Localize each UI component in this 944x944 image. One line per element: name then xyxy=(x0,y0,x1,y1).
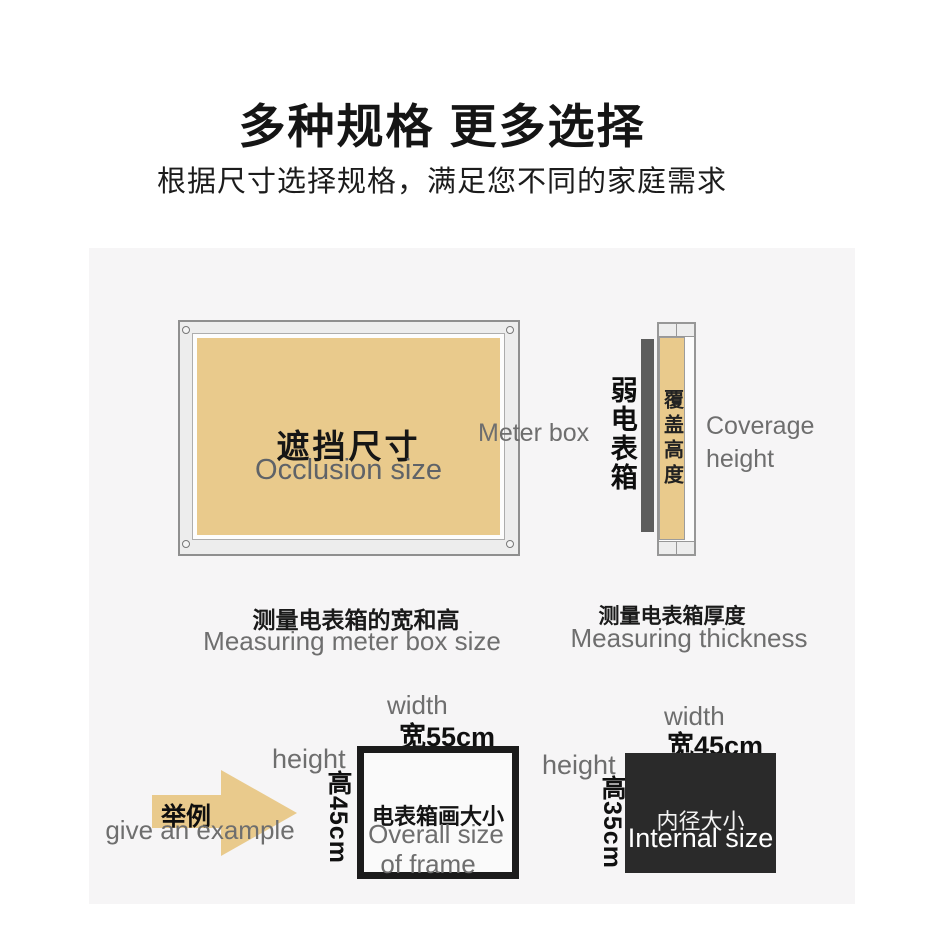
weak-current-box-label-cn: 弱电表箱 xyxy=(606,376,636,502)
meter-box-size-infographic: 多种规格 更多选择 根据尺寸选择规格，满足您不同的家庭需求 遮挡尺寸 Occlu… xyxy=(0,0,944,944)
screw-hole-icon xyxy=(182,540,190,548)
overall-size-label-en-line2: of frame xyxy=(350,849,506,880)
meter-box-label: Meter box xyxy=(478,419,589,448)
internal-size-label-en: Internal size xyxy=(625,823,776,854)
cover-side-canvas-strip: 覆盖高度 xyxy=(659,337,685,540)
cap-divider xyxy=(676,541,677,554)
coverage-height-label-en: Coverage height xyxy=(706,410,831,476)
screw-hole-icon xyxy=(182,326,190,334)
example-label-en: give an example xyxy=(100,815,300,846)
cover-side-bottom-cap xyxy=(659,541,694,554)
cover-side-top-cap xyxy=(659,324,694,337)
front-caption-en: Measuring meter box size xyxy=(182,626,522,657)
page-title: 多种规格 更多选择 xyxy=(0,88,884,157)
occlusion-size-label-en: Occlusion size xyxy=(197,454,500,487)
coverage-height-label-cn: 覆盖高度 xyxy=(658,389,687,489)
screw-hole-icon xyxy=(506,326,514,334)
overall-size-label-en-line1: Overall size xyxy=(358,819,514,850)
cover-side-frame: 覆盖高度 xyxy=(657,322,696,556)
side-caption-en: Measuring thickness xyxy=(519,623,859,654)
meter-box-side-bar xyxy=(641,339,654,532)
page-subtitle: 根据尺寸选择规格，满足您不同的家庭需求 xyxy=(0,158,884,200)
cap-divider xyxy=(676,324,677,337)
screw-hole-icon xyxy=(506,540,514,548)
